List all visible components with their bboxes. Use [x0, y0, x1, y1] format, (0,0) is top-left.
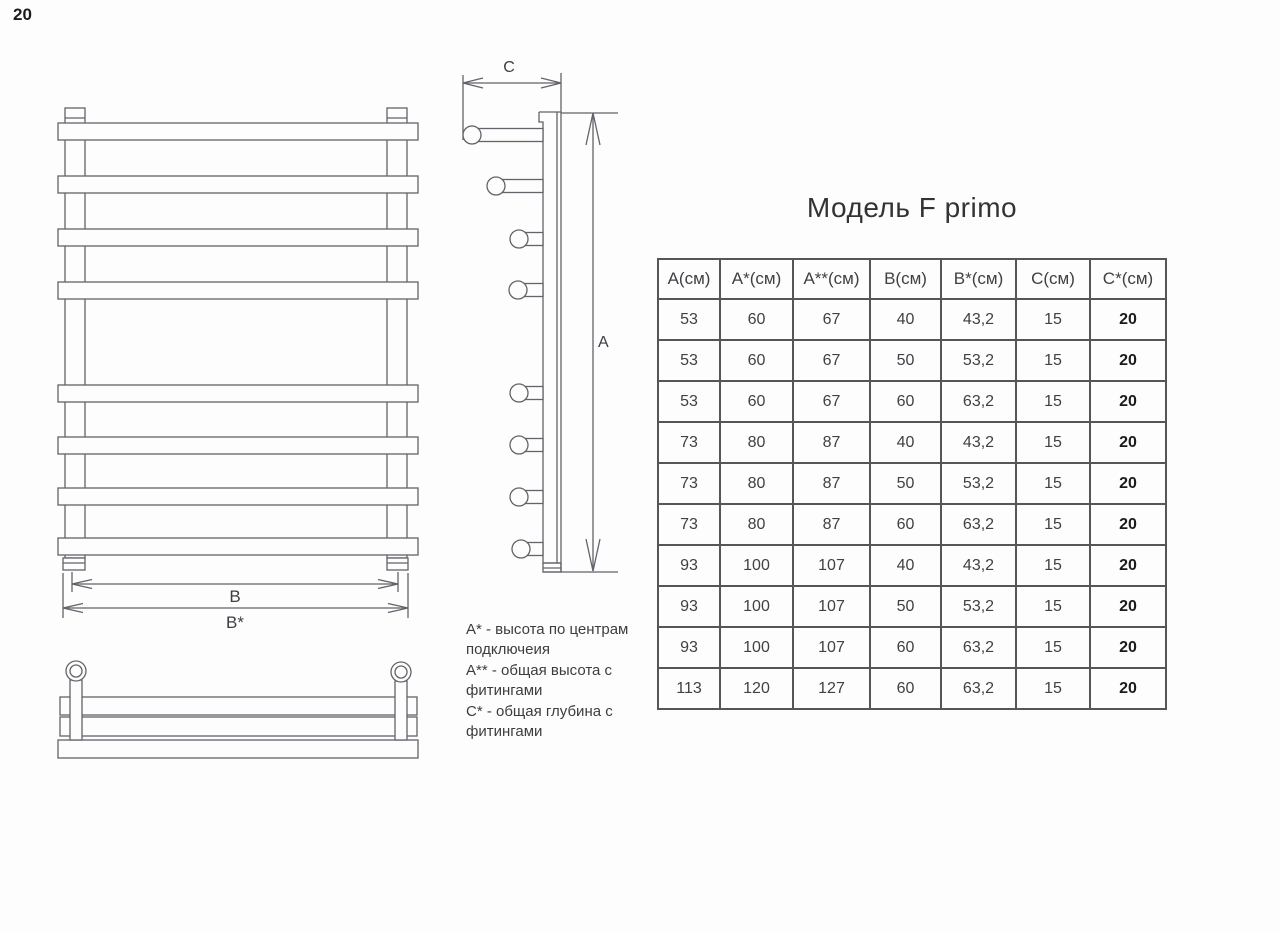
table-cell: 50 [870, 340, 941, 381]
spec-table: А(см) А*(см) А**(см) В(см) В*(см) С(см) … [657, 258, 1167, 710]
table-cell: 53,2 [941, 463, 1016, 504]
table-cell: 100 [720, 586, 793, 627]
header-cell-c: С(см) [1016, 259, 1090, 299]
table-row: 7380876063,21520 [658, 504, 1166, 545]
table-cell: 87 [793, 463, 870, 504]
post-rings [66, 661, 411, 682]
table-cell: 20 [1090, 463, 1166, 504]
note-a-double-star: А** - общая высота с фитингами [466, 661, 648, 701]
table-cell: 107 [793, 627, 870, 668]
table-cell: 20 [1090, 668, 1166, 709]
table-row: 931001076063,21520 [658, 627, 1166, 668]
table-row: 7380874043,21520 [658, 422, 1166, 463]
table-row: 5360675053,21520 [658, 340, 1166, 381]
table-row: 931001074043,21520 [658, 545, 1166, 586]
table-cell: 53,2 [941, 340, 1016, 381]
spec-table-header: А(см) А*(см) А**(см) В(см) В*(см) С(см) … [658, 259, 1166, 299]
table-cell: 40 [870, 545, 941, 586]
table-cell: 15 [1016, 668, 1090, 709]
table-cell: 107 [793, 545, 870, 586]
table-cell: 60 [870, 668, 941, 709]
table-cell: 127 [793, 668, 870, 709]
dimension-label-b: В [229, 587, 240, 606]
table-cell: 80 [720, 422, 793, 463]
top-view-svg [40, 650, 440, 775]
table-cell: 67 [793, 299, 870, 340]
table-cell: 93 [658, 545, 720, 586]
table-cell: 53 [658, 381, 720, 422]
table-cell: 60 [870, 504, 941, 545]
table-cell: 73 [658, 463, 720, 504]
table-cell: 20 [1090, 504, 1166, 545]
dimension-label-b-star: В* [226, 613, 244, 632]
table-cell: 63,2 [941, 504, 1016, 545]
document-page: 20 [0, 0, 1280, 931]
table-cell: 15 [1016, 381, 1090, 422]
table-cell: 93 [658, 627, 720, 668]
table-cell: 53 [658, 299, 720, 340]
front-view-svg: В В* [40, 95, 440, 645]
table-cell: 15 [1016, 299, 1090, 340]
header-row: А(см) А*(см) А**(см) В(см) В*(см) С(см) … [658, 259, 1166, 299]
table-cell: 120 [720, 668, 793, 709]
table-cell: 15 [1016, 586, 1090, 627]
table-row: 5360676063,21520 [658, 381, 1166, 422]
front-view-drawing: В В* [40, 95, 440, 650]
side-view-drawing: С А [440, 50, 640, 605]
table-cell: 20 [1090, 299, 1166, 340]
table-cell: 15 [1016, 422, 1090, 463]
header-cell-b-star: В*(см) [941, 259, 1016, 299]
top-view-drawing [40, 650, 440, 780]
header-cell-b: В(см) [870, 259, 941, 299]
table-cell: 15 [1016, 627, 1090, 668]
table-cell: 20 [1090, 422, 1166, 463]
table-cell: 53 [658, 340, 720, 381]
table-cell: 20 [1090, 627, 1166, 668]
pegs [463, 126, 543, 558]
table-cell: 73 [658, 504, 720, 545]
table-cell: 53,2 [941, 586, 1016, 627]
table-row: 5360674043,21520 [658, 299, 1166, 340]
table-cell: 50 [870, 586, 941, 627]
table-cell: 40 [870, 299, 941, 340]
table-cell: 20 [1090, 545, 1166, 586]
bottom-stubs [63, 558, 408, 570]
table-cell: 60 [720, 340, 793, 381]
model-title: Модель F primo [657, 192, 1167, 224]
table-cell: 107 [793, 586, 870, 627]
table-cell: 50 [870, 463, 941, 504]
table-cell: 43,2 [941, 545, 1016, 586]
table-cell: 80 [720, 463, 793, 504]
legend-notes: А* - высота по центрам подключеия А** - … [466, 620, 648, 743]
table-cell: 67 [793, 340, 870, 381]
header-cell-a-double-star: А**(см) [793, 259, 870, 299]
dimension-label-a: А [598, 334, 609, 351]
table-cell: 80 [720, 504, 793, 545]
table-cell: 40 [870, 422, 941, 463]
table-cell: 15 [1016, 545, 1090, 586]
table-cell: 63,2 [941, 668, 1016, 709]
side-view-svg: С А [440, 50, 640, 600]
note-c-star: С* - общая глубина с фитингами [466, 702, 648, 742]
header-cell-c-star: С*(см) [1090, 259, 1166, 299]
table-cell: 93 [658, 586, 720, 627]
table-cell: 20 [1090, 381, 1166, 422]
table-cell: 67 [793, 381, 870, 422]
table-row: 1131201276063,21520 [658, 668, 1166, 709]
table-cell: 100 [720, 627, 793, 668]
table-cell: 87 [793, 422, 870, 463]
table-row: 931001075053,21520 [658, 586, 1166, 627]
table-cell: 100 [720, 545, 793, 586]
table-cell: 87 [793, 504, 870, 545]
table-cell: 15 [1016, 340, 1090, 381]
spec-table-body: 5360674043,215205360675053,2152053606760… [658, 299, 1166, 709]
bars [58, 123, 418, 555]
header-cell-a-star: А*(см) [720, 259, 793, 299]
table-cell: 43,2 [941, 299, 1016, 340]
table-row: 7380875053,21520 [658, 463, 1166, 504]
table-cell: 20 [1090, 586, 1166, 627]
page-number: 20 [13, 5, 32, 25]
table-cell: 15 [1016, 504, 1090, 545]
table-cell: 63,2 [941, 627, 1016, 668]
table-cell: 15 [1016, 463, 1090, 504]
table-cell: 20 [1090, 340, 1166, 381]
table-cell: 43,2 [941, 422, 1016, 463]
table-cell: 63,2 [941, 381, 1016, 422]
dimension-label-c: С [503, 59, 515, 76]
note-a-star: А* - высота по центрам подключеия [466, 620, 648, 660]
table-cell: 60 [870, 627, 941, 668]
depth-bars [58, 697, 418, 758]
table-cell: 60 [720, 381, 793, 422]
table-cell: 73 [658, 422, 720, 463]
table-cell: 113 [658, 668, 720, 709]
table-cell: 60 [720, 299, 793, 340]
table-cell: 60 [870, 381, 941, 422]
header-cell-a: А(см) [658, 259, 720, 299]
